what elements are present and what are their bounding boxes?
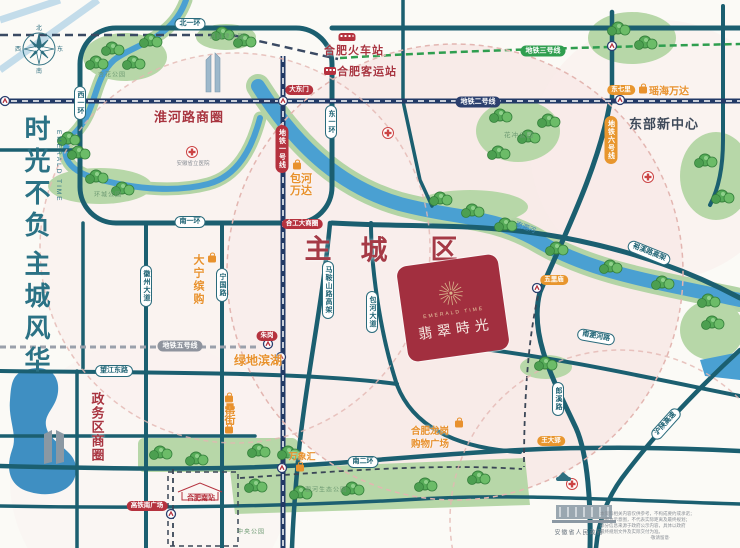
station-wangdaying: 王大郢 (537, 436, 565, 446)
disclaimer-line: ·敬请留意· (600, 535, 720, 541)
road-label-west-ring1: 西一环 (74, 86, 86, 120)
compass-west-label: 西 (15, 46, 21, 53)
park-label-xiaoyaojin: 逍遥津公园 (209, 32, 244, 41)
daning-bag-icon (208, 256, 216, 263)
railway-station-label: 合肥火车站 (324, 42, 384, 58)
east-new-center-label: 东部新中心 (629, 114, 699, 133)
lei-street-bag-icon (225, 427, 233, 434)
road-label-huizhou-ave: 徽州大道 (140, 265, 152, 307)
greenland-binhu-label: 绿地滨湖 (234, 352, 282, 369)
train-icon (339, 33, 356, 41)
lei-street-label: 罍街 (221, 403, 237, 425)
baohe-wanda-label-2: 万达 (290, 182, 312, 198)
hfut-business-label: 合工大商圈 (282, 219, 323, 229)
road-label-north-ring1: 北一环 (175, 18, 206, 30)
longgang-label-2: 购物广场 (411, 436, 449, 450)
compass-east-label: 东 (57, 45, 63, 53)
project-marker: EMERALD TIME 翡翠時光 (396, 253, 510, 362)
coach-station-label: 合肥客运站 (337, 63, 397, 79)
gov-building-label: 安徽省人民政府 (554, 528, 603, 537)
station-zhugang: 朱岗 (257, 331, 278, 341)
south-square-label: 高铁南广场 (127, 501, 168, 511)
road-label-langxi-rd: 郎溪路 (552, 382, 564, 416)
project-logo-icon (434, 276, 468, 310)
road-label-wangjiang-east: 望江东路 (95, 365, 133, 377)
park-label-huachong: 花冲公园 (504, 129, 534, 139)
gov-business-label: 政务区商圈 (88, 392, 107, 462)
park-label-huancheng: 环城公园 (94, 190, 122, 199)
huaihe-business-label: 淮河路商圈 (154, 107, 224, 126)
park-label-xinghua: 杏花公园 (98, 70, 126, 79)
metro-line6-badge: 地铁六号线 (605, 116, 618, 164)
hospital-provincial-label: 安徽省立医院 (176, 159, 209, 167)
daning-bingou-label: 大宁缤购 (190, 254, 206, 306)
baohe-wanda-bag-icon (293, 163, 301, 170)
slogan-line2: 主城风华 (18, 250, 55, 378)
slogan-english: EMERALD TIME (55, 130, 62, 203)
bus-icon (324, 67, 336, 75)
metro-line1-badge: 地铁一号线 (276, 125, 289, 173)
mixc-label: 万象汇 (288, 450, 315, 463)
metro-line5-badge: 地铁五号线 (158, 341, 203, 352)
road-label-south-ring2: 南二环 (348, 456, 379, 468)
metro-line3-badge: 地铁三号线 (521, 46, 566, 57)
road-label-east-ring1: 东一环 (325, 105, 337, 139)
main-city-char-2: 城 (361, 229, 388, 268)
road-label-baohe-ave: 包河大道 (366, 291, 378, 333)
station-wulimiao: 五里庙 (540, 275, 568, 285)
park-label-feihe-eco: 淝河生态公园 (305, 485, 347, 494)
lei-street-top-icon (225, 396, 233, 403)
yaohai-wanda-bag-icon (639, 87, 647, 94)
compass-south-label: 南 (36, 67, 42, 75)
slogan-line1: 时光不负 (18, 115, 55, 243)
longgang-bag-icon (455, 421, 463, 428)
park-label-central: 中央公园 (237, 527, 265, 536)
longgang-label-1: 合肥龙岗 (411, 423, 449, 437)
metro-line2-badge: 地铁二号线 (456, 97, 501, 108)
road-label-south-ring1: 南一环 (175, 216, 206, 228)
mixc-bag-icon (296, 465, 304, 472)
disclaimer-text: 本资料相关内容仅供参考，不构成要约或承诺； 地图为示意图，不代表实际距离及最终规… (600, 511, 720, 541)
station-dadongmen: 大东门 (285, 85, 313, 95)
yaohai-wanda-label: 瑶海万达 (649, 83, 689, 98)
south-station-label: 合肥南站 (187, 493, 215, 503)
location-map: 北 南 西 东 南淝河 时光不负 主城风华 EMERALD TIME EMERA… (0, 0, 740, 548)
road-label-ningguo-rd: 宁国路 (216, 268, 228, 302)
road-label-maanshan-elevated: 马鞍山路高架 (322, 261, 334, 319)
station-dongqili: 东七里 (607, 85, 635, 95)
compass-north-label: 北 (36, 24, 42, 32)
